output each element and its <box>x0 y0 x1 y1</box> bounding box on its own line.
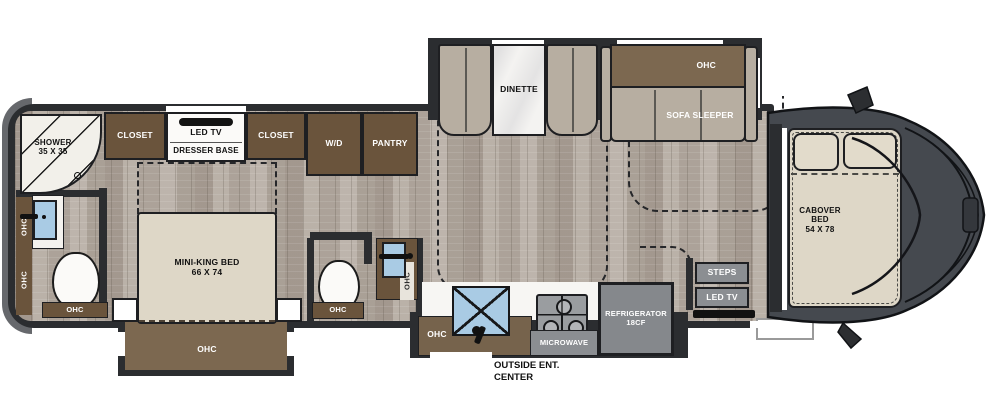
windshield-curve <box>852 138 920 294</box>
tv-icon <box>179 118 233 126</box>
faucet-icon <box>20 214 38 219</box>
pillow <box>793 133 839 171</box>
window-gap <box>287 332 294 356</box>
faucet-icon <box>379 254 409 259</box>
dinette-table: DINETTE <box>492 44 546 136</box>
grille-icon <box>963 198 978 232</box>
pantry: PANTRY <box>362 112 418 176</box>
bath-sink <box>33 200 57 240</box>
sofa-arm-right <box>744 46 758 142</box>
toilet-overhead-cabinet: OHC <box>312 302 364 319</box>
outside-ent-line1: OUTSIDE ENT. <box>494 360 559 372</box>
mini-king-bed: MINI-KING BED 66 X 74 <box>137 212 277 324</box>
faucet-knob-icon <box>472 326 481 335</box>
led-tv-label: LED TV <box>168 127 244 139</box>
bath-sink-ohc-label: OHC <box>16 203 32 251</box>
dresser-tv-cabinet: LED TV DRESSER BASE <box>166 112 246 162</box>
faucet-knob-icon <box>407 253 413 259</box>
kitchen-ohc-label: OHC <box>420 328 454 341</box>
window-gap <box>118 332 125 356</box>
entry-door-gap <box>750 321 770 328</box>
bed-slide-seam <box>139 320 275 322</box>
cushion-seam <box>572 48 574 132</box>
refrigerator-size: 18CF <box>626 319 645 328</box>
galley-slide-path <box>640 246 692 286</box>
nightstand-left <box>112 298 138 322</box>
washer-dryer: W/D <box>306 112 362 176</box>
entry-steps: STEPS <box>695 262 749 284</box>
bed-size: 66 X 74 <box>192 268 223 278</box>
cabover-size: 54 X 78 <box>806 225 835 234</box>
closet-right: CLOSET <box>246 112 306 160</box>
outside-ent-hatch <box>430 352 492 358</box>
shower-size: 35 X 35 <box>39 147 68 156</box>
cabover-line1: CABOVER <box>799 206 840 215</box>
toilet-overhead-cabinet: OHC <box>42 302 108 318</box>
shower-label: SHOWER 35 X 35 <box>22 132 84 162</box>
mirror-icon <box>838 323 861 348</box>
wall <box>364 238 372 264</box>
faucet-knob-icon <box>42 215 46 219</box>
cushion-seam <box>465 48 467 132</box>
wall <box>99 188 107 314</box>
shower-text: SHOWER <box>34 138 71 147</box>
closet-left: CLOSET <box>104 112 166 160</box>
divider <box>170 142 242 143</box>
bed-slide-path <box>137 162 277 214</box>
sofa-sleeper-label: SOFA SLEEPER <box>666 96 734 136</box>
microwave: MICROWAVE <box>530 330 598 356</box>
tv-credenza <box>693 310 755 318</box>
burner-icon <box>556 299 572 315</box>
cabover-wall <box>770 124 782 312</box>
dinette-bench-left <box>438 44 492 136</box>
shower-drain-icon <box>74 172 81 179</box>
windshield-outline <box>840 120 940 320</box>
nightstand-right <box>276 298 302 322</box>
wall <box>310 232 372 240</box>
dresser-base-label: DRESSER BASE <box>168 145 244 157</box>
cabover-line2: BED <box>811 215 829 224</box>
rv-floorplan: DINETTE OHC SOFA SLEEPER SHOWER 35 X 35 … <box>0 0 1000 419</box>
bath-sink-ohc-label: OHC <box>400 264 414 298</box>
wall <box>686 258 693 310</box>
outside-ent-center-label: OUTSIDE ENT. CENTER <box>494 360 584 384</box>
cushion-seam <box>654 90 656 140</box>
sofa-overhead-cabinet: OHC <box>610 44 746 88</box>
dinette-bench-right <box>546 44 598 136</box>
toilet <box>52 252 100 308</box>
entry-led-tv: LED TV <box>695 287 749 308</box>
outside-ent-line2: CENTER <box>494 372 533 384</box>
refrigerator: REFRIGERATOR 18CF <box>598 282 674 356</box>
window-gap <box>782 128 787 310</box>
bath-cabinet-ohc-label: OHC <box>16 258 32 302</box>
bed-foot-ohc-label: OHC <box>160 342 254 358</box>
